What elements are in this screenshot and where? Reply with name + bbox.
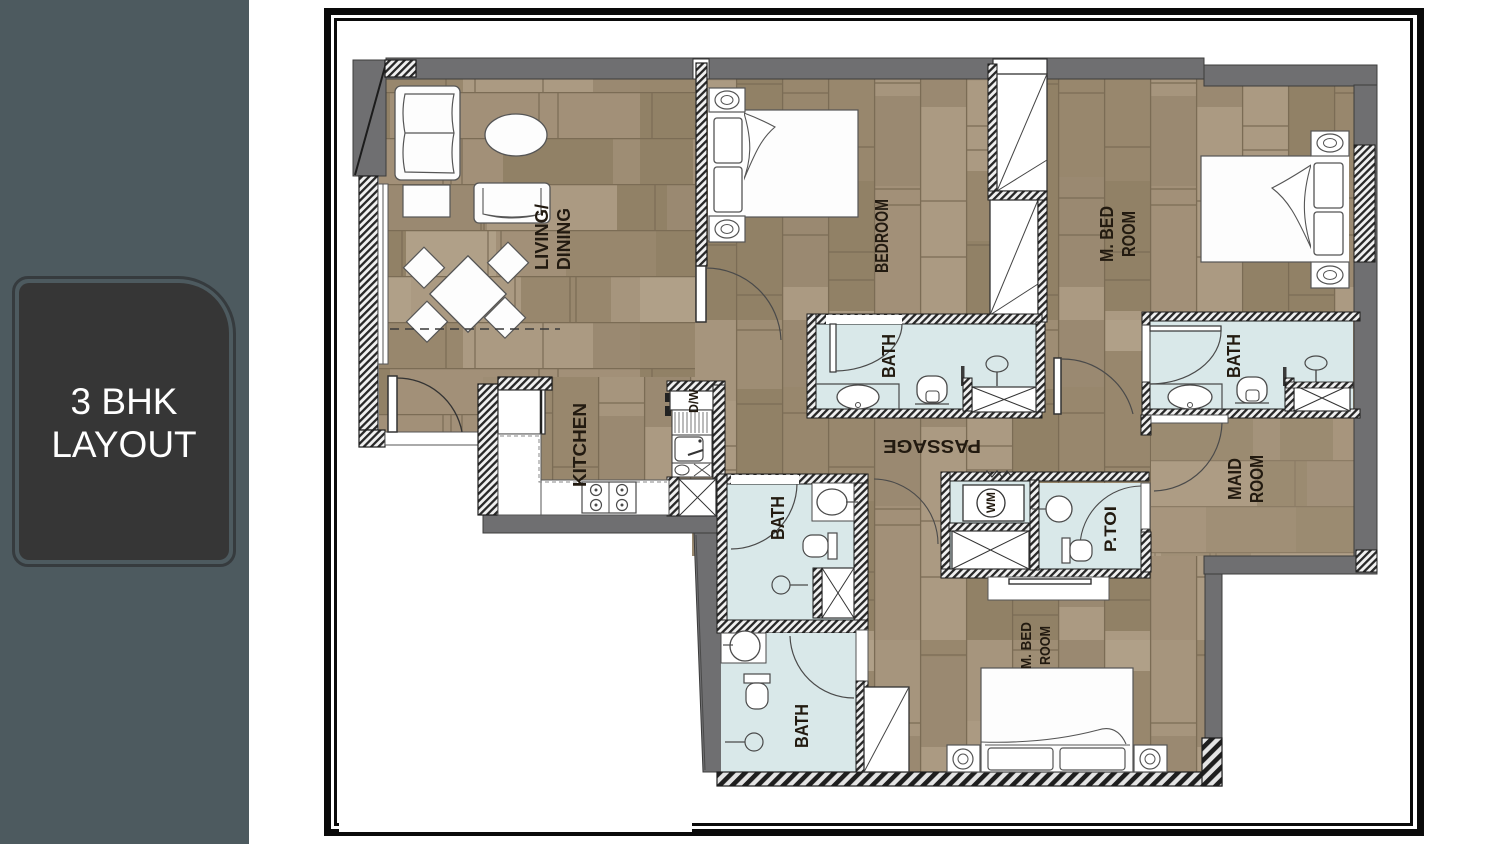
svg-text:BATH: BATH [1223, 334, 1244, 378]
svg-text:BATH: BATH [767, 496, 788, 540]
svg-text:DINING: DINING [553, 208, 574, 270]
svg-text:ROOM: ROOM [1118, 211, 1139, 257]
svg-text:PASSAGE: PASSAGE [883, 436, 981, 457]
svg-text:BATH: BATH [791, 704, 812, 748]
svg-text:LIVING/: LIVING/ [531, 204, 552, 270]
svg-text:WM: WM [984, 492, 998, 513]
svg-text:M. BED: M. BED [1018, 622, 1035, 669]
svg-text:KITCHEN: KITCHEN [569, 403, 590, 487]
svg-text:MAID: MAID [1224, 458, 1245, 500]
svg-text:ROOM: ROOM [1246, 455, 1267, 503]
svg-text:ROOM: ROOM [1037, 626, 1054, 665]
svg-text:M. BED: M. BED [1096, 206, 1117, 262]
svg-text:BATH: BATH [878, 334, 899, 378]
svg-text:BEDROOM: BEDROOM [871, 199, 892, 273]
svg-text:D/W: D/W [686, 388, 701, 413]
svg-text:P.TOI: P.TOI [1101, 506, 1120, 552]
